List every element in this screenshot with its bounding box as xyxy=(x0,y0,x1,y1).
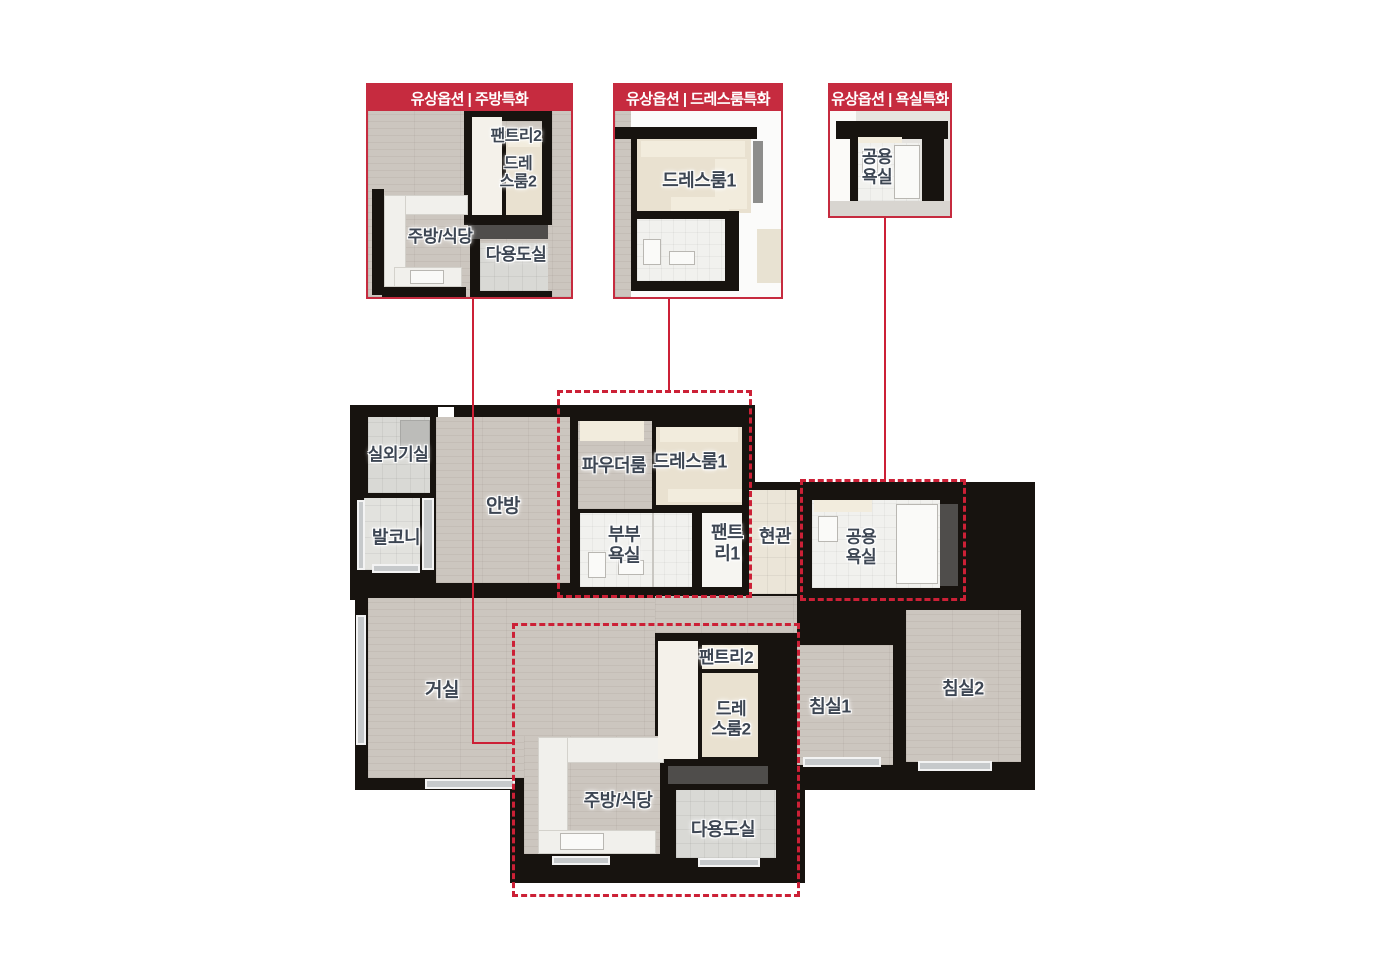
room-label-living-room: 거실 xyxy=(425,680,459,702)
highlight-region-bathroom xyxy=(800,479,966,601)
callout-bathroom-title: 유상옵션 | 욕실특화 xyxy=(830,85,950,111)
wall xyxy=(631,281,739,291)
mini-closet xyxy=(641,141,745,157)
room-label-dressroom1: 드레스룸1 xyxy=(653,452,727,473)
mini-storage-band xyxy=(468,225,548,239)
wall xyxy=(850,135,858,201)
window-balcony-left xyxy=(357,500,365,570)
mini-sink xyxy=(669,251,695,265)
window-bedroom2-bottom xyxy=(918,761,992,771)
room-label-pantry1: 팬트 리1 xyxy=(711,522,743,563)
mini-bathtub xyxy=(894,145,920,199)
callout-label-kitchen-dining: 주방/식당 xyxy=(408,227,473,247)
callout-kitchen-option: 유상옵션 | 주방특화 xyxy=(366,83,573,299)
balcony-door-window xyxy=(422,498,434,570)
wall xyxy=(470,239,480,297)
mini-sink xyxy=(410,270,444,284)
connector-kitchen-horizontal xyxy=(472,742,514,744)
window-living-left xyxy=(356,615,366,745)
mini-toilet xyxy=(643,239,661,265)
room-label-bedroom1: 침실1 xyxy=(809,697,851,718)
room-label-common-bath: 공용 욕실 xyxy=(846,527,876,566)
callout-label-utility: 다용도실 xyxy=(486,245,547,265)
highlight-region-dressroom xyxy=(557,390,752,598)
room-label-outdoor-unit: 실외기실 xyxy=(368,445,429,465)
wall xyxy=(472,291,552,297)
wall xyxy=(382,287,466,297)
mini-door-column xyxy=(753,141,763,203)
window-balcony-bottom xyxy=(372,564,420,573)
wall xyxy=(725,211,739,289)
floorplan-canvas: 유상옵션 | 주방특화 유상옵션 | 드레스룸특화 xyxy=(0,0,1400,976)
room-label-kitchen-dining: 주방/식당 xyxy=(584,791,653,812)
highlight-region-kitchen xyxy=(512,623,800,897)
callout-label-common-bath: 공용 욕실 xyxy=(862,147,892,186)
callout-label-dressroom1: 드레스룸1 xyxy=(662,171,736,192)
mini-floor xyxy=(830,201,950,216)
callout-dressroom-miniplan xyxy=(615,111,781,297)
room-label-pantry2: 팬트리2 xyxy=(699,648,753,668)
room-label-utility: 다용도실 xyxy=(691,820,755,841)
room-label-dressroom2: 드레 스룸2 xyxy=(711,699,750,738)
callout-kitchen-title: 유상옵션 | 주방특화 xyxy=(368,85,571,111)
connector-bathroom-vertical xyxy=(884,218,886,480)
mini-closet xyxy=(671,197,729,211)
wall xyxy=(542,111,552,223)
room-label-bedroom2: 침실2 xyxy=(942,679,984,700)
wall xyxy=(464,215,552,225)
mini-entry-tile xyxy=(757,229,781,283)
room-label-balcony: 발코니 xyxy=(372,528,420,549)
window-bedroom1-bottom xyxy=(803,757,881,767)
callout-dressroom-title: 유상옵션 | 드레스룸특화 xyxy=(615,85,781,111)
room-label-powder-room: 파우더룸 xyxy=(582,456,646,477)
room-label-entrance: 현관 xyxy=(759,527,791,548)
wall xyxy=(922,133,944,203)
wall xyxy=(631,211,733,219)
room-label-master-bath: 부부 욕실 xyxy=(608,524,640,565)
room-label-master-bedroom: 안방 xyxy=(486,496,520,518)
window-living-bottom xyxy=(425,779,515,789)
connector-dressroom-vertical xyxy=(668,299,670,391)
connector-kitchen-vertical xyxy=(472,299,474,742)
wall xyxy=(372,189,384,295)
callout-label-pantry2: 팬트리2 xyxy=(490,128,541,146)
callout-label-dressroom2: 드레 스룸2 xyxy=(500,156,537,193)
